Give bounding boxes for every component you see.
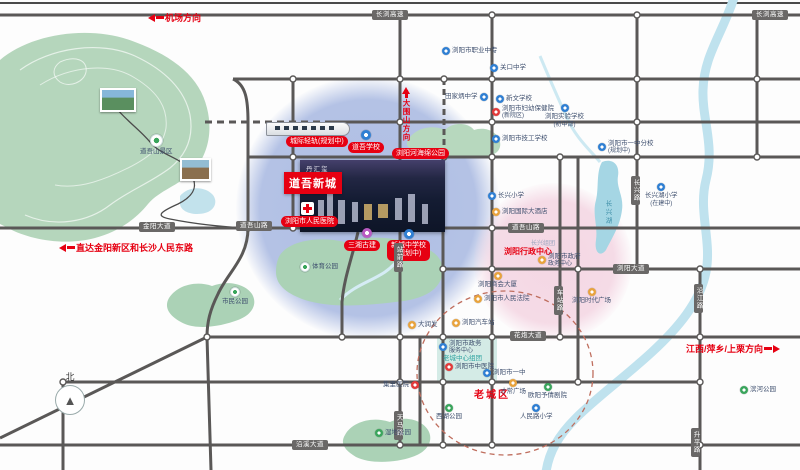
bus-station-icon (452, 319, 460, 327)
school-icon (361, 130, 371, 140)
road-pill: 道吾山路 (508, 223, 544, 233)
direction-daweishan: 大围山方向 (401, 99, 412, 142)
park-icon (300, 262, 310, 272)
school-icon (483, 369, 491, 377)
office-icon (494, 272, 502, 280)
park-icon (375, 429, 383, 437)
road-pill-vertical: 车站路 (554, 286, 563, 315)
mountain-park-icon (150, 134, 163, 147)
market-icon (408, 321, 416, 329)
old-town-cluster-label: 老城中心组团 (443, 355, 482, 363)
park-icon (230, 287, 240, 297)
theatre-icon (544, 383, 552, 391)
poi-government: 浏阳市政府 政务中心 (538, 253, 581, 267)
poi-school: 关口中学 (490, 64, 526, 72)
road-pill: 长浏高速 (752, 10, 788, 20)
park-icon (445, 404, 453, 412)
government-icon (538, 256, 546, 264)
road-pill: 沿溪大道 (292, 440, 328, 450)
daowushan-scenic-poi: 道吾山景区 (140, 134, 173, 156)
left-arrow-icon (55, 244, 66, 252)
school-icon (490, 64, 498, 72)
road-pill: 浏阳大道 (613, 264, 649, 274)
poi-bus-station: 浏阳汽车站 (452, 319, 495, 327)
poi-plaza: 浏阳时代广场 (572, 288, 611, 305)
school-icon (532, 404, 540, 412)
road-pill: 金阳大道 (139, 222, 175, 232)
poi-school: 长兴湖小学 (在建中) (645, 183, 678, 207)
sponge-park-label: 浏阳河海绵公园 (392, 148, 449, 159)
poi-school: 新文学校 (496, 95, 532, 103)
road-pill-vertical: 升平路 (691, 428, 700, 457)
school-icon (496, 95, 504, 103)
poi-service-center: 浏阳市政务 服务中心 (439, 340, 482, 354)
poi-park: 体育公园 (300, 262, 338, 272)
poi-plaza: 才常广场 (500, 379, 526, 396)
direction-jiangxi: 江西/萍乡/上栗方向 (686, 342, 784, 355)
court-icon (474, 295, 482, 303)
school-icon (480, 93, 488, 101)
school-icon (404, 229, 414, 239)
poi-school: 人民路小学 (520, 404, 553, 421)
right-arrow-icon (773, 345, 784, 353)
poi-park: 西湖公园 (436, 404, 462, 421)
hospital-icon (411, 381, 419, 389)
scenic-icon (362, 228, 372, 238)
left-arrow-icon (144, 14, 155, 22)
poi-park: 滨河公园 (740, 386, 776, 394)
road-pill-vertical: 长兴路 (631, 176, 640, 205)
poi-school: 浏阳市职业中专 (442, 47, 498, 55)
compass-north-label: 北 (52, 370, 88, 383)
project-name-box: 道吾新城 (284, 172, 342, 194)
hospital-label: 浏阳市人民医院 (281, 216, 338, 227)
water-shapes (180, 0, 735, 470)
school-icon (492, 135, 500, 143)
poi-market: 大润发 (408, 321, 438, 329)
hospital-icon (445, 363, 453, 371)
poi-school: 浏阳市一中 (483, 369, 526, 377)
road-pill: 道吾山路 (236, 221, 272, 231)
poi-school: 浏阳市技工学校 (492, 135, 548, 143)
road-pill-vertical: 沿江路 (694, 284, 703, 313)
compass: 北 ▲ (52, 370, 88, 415)
hospital-cross-icon (301, 202, 314, 215)
service-center-icon (439, 343, 447, 351)
hotel-icon (492, 208, 500, 216)
sanxiang-label: 三湘古建 (344, 240, 380, 251)
high-speed-train-illustration (266, 122, 350, 136)
direction-airport: 机场方向 (144, 11, 201, 24)
poi-school: 浏阳市一中分校 (规划中) (598, 140, 654, 154)
daowu-school-label: 道吾学校 (348, 142, 384, 153)
road-pill-vertical: 站前路 (394, 243, 403, 272)
direction-jinyang: 直达金阳新区和长沙人民东路 (55, 241, 193, 254)
poi-hospital: 集里医院 (383, 381, 419, 389)
poi-school: 浏阳实验学校 (初中部) (545, 104, 584, 128)
terrain-roads-layer (0, 0, 800, 470)
poi-school: 长兴小学 (488, 192, 524, 200)
school-icon (488, 192, 496, 200)
poi-hotel: 浏阳国际大酒店 (492, 208, 548, 216)
park-icon (740, 386, 748, 394)
poi-court: 浏阳市人民法院 (474, 295, 530, 303)
school-icon (657, 183, 665, 191)
poi-theatre: 欧阳予倩剧院 (528, 383, 567, 400)
rail-label: 城际轻轨(规划中) (286, 136, 348, 147)
school-icon (442, 47, 450, 55)
hospital-icon (492, 108, 500, 116)
scenic-photo-thumbnail (180, 158, 211, 181)
school-icon (561, 104, 569, 112)
scenic-photo-thumbnail (100, 88, 136, 112)
changxing-lake-label: 长兴湖 (602, 200, 612, 226)
school-icon (598, 143, 606, 151)
poi-building: 浏阳商会大厦 (478, 272, 517, 289)
poi-park: 市民公园 (222, 287, 248, 306)
poi-park: 湿地公园 (375, 429, 411, 437)
compass-needle-icon: ▲ (55, 385, 85, 415)
poi-school: 田家炳中学 (445, 93, 488, 101)
changxing-cluster-label: 长兴组团 (531, 238, 555, 247)
plaza-icon (509, 379, 517, 387)
plaza-icon (588, 288, 596, 296)
road-pill: 长浏高速 (372, 10, 408, 20)
road-pill: 花炮大道 (510, 331, 546, 341)
location-map: 丹汇玺 道吾新城 浏阳市人民医院 城际轻轨(规划中) 道吾学校 浏阳河海绵公园 … (0, 0, 800, 470)
